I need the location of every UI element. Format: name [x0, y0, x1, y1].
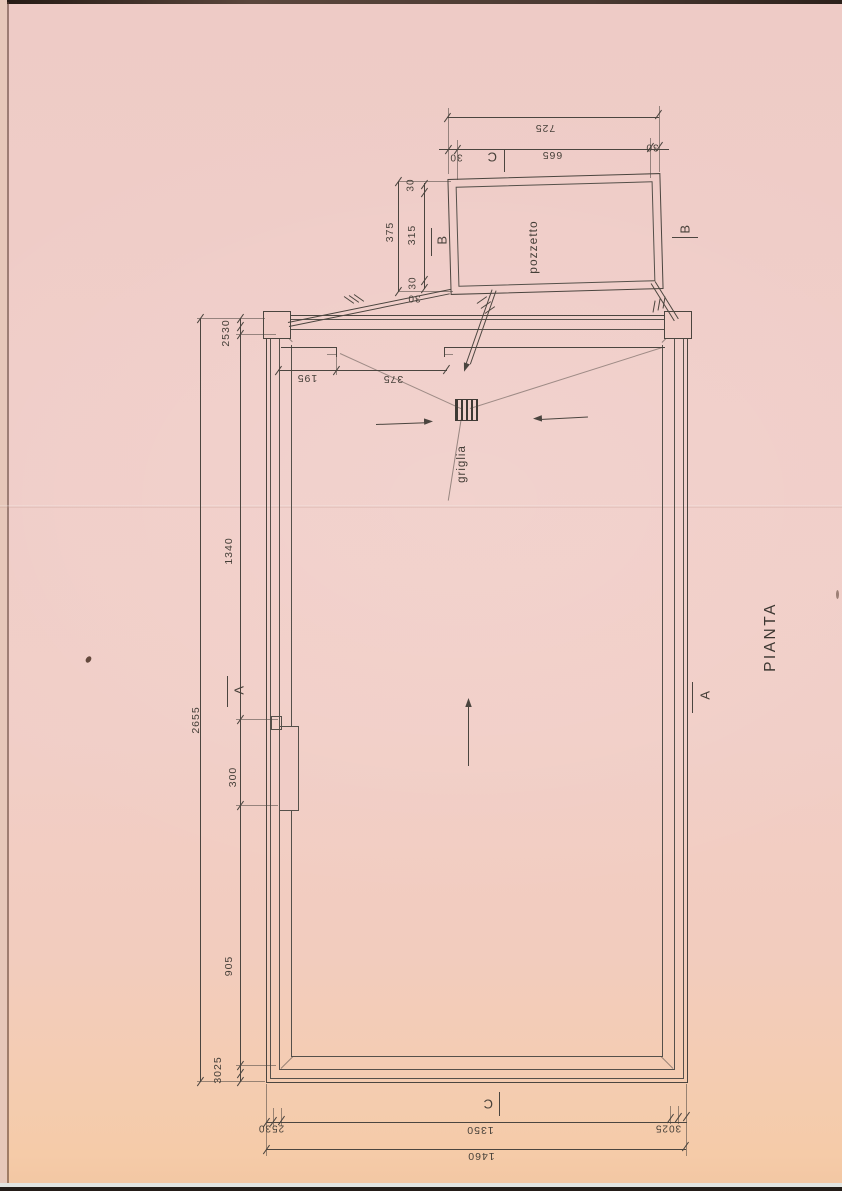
- dim-extension-line: [197, 1081, 265, 1082]
- flow-arrow-shaft: [468, 706, 469, 766]
- section-line-b-right: [672, 237, 698, 238]
- dim-edge-to-channel: 195: [297, 372, 318, 384]
- dim-extension-line: [266, 1084, 267, 1156]
- dim-pozzetto-wall-left: 30: [449, 152, 462, 163]
- dim-pozzetto-overall-depth: 375: [384, 222, 396, 243]
- dim-pipe-diameter: 30: [407, 293, 420, 304]
- dim-plan-overall-height: 2655: [190, 706, 202, 733]
- dim-line: [447, 117, 659, 118]
- dim-extension-line: [686, 1084, 687, 1156]
- paper-left-edge-line: [7, 2, 9, 1191]
- dim-line: [240, 318, 241, 1082]
- dim-lower-basin: 905: [223, 956, 235, 977]
- dim-extension-line: [659, 106, 660, 172]
- dim-bottom-walls-right: 3025: [655, 1123, 681, 1134]
- pozzetto-label: pozzetto: [526, 220, 540, 273]
- dim-extension-line: [457, 140, 458, 180]
- channel-right-line: [444, 347, 665, 348]
- dim-pozzetto-wall-bottom: 30: [408, 276, 419, 289]
- dim-extension-line: [399, 181, 451, 182]
- channel-left-line: [281, 347, 337, 348]
- pozzetto-inner-rect: [456, 181, 656, 286]
- dim-pozzetto-inner-width: 665: [542, 149, 563, 161]
- dim-extension-line: [678, 1106, 679, 1124]
- scanned-drawing-sheet: griglia pozzetto 725 30 665 30 C: [0, 0, 842, 1191]
- dim-line-overall: [200, 318, 201, 1082]
- grate-label: griglia: [456, 445, 468, 483]
- dim-plan-walls-top: 2530: [220, 319, 232, 346]
- drawing-title: PIANTA: [762, 602, 780, 672]
- paper-speck: [84, 655, 92, 664]
- basin-floor-rect: [291, 345, 663, 1057]
- dim-extension-line: [399, 291, 453, 292]
- section-line-a-left: [227, 676, 228, 707]
- dim-plan-walls-bottom: 3025: [212, 1056, 224, 1083]
- scan-top-edge: [0, 0, 842, 4]
- dim-extension-line: [236, 719, 278, 720]
- dim-basin-width: 1350: [466, 1124, 493, 1136]
- dim-extension-line: [281, 1108, 282, 1126]
- dim-extension-line: [236, 334, 276, 335]
- dim-pozzetto-overall-width: 725: [535, 122, 556, 134]
- dim-line: [398, 181, 399, 292]
- dim-extension-line: [236, 805, 278, 806]
- dim-extension-line: [236, 1065, 276, 1066]
- section-line-c-top: [504, 150, 505, 172]
- section-marker-b-left: B: [435, 235, 450, 244]
- section-marker-a-left: A: [232, 685, 247, 694]
- dim-extension-line: [670, 1106, 671, 1124]
- corner-post-right: [664, 311, 692, 339]
- section-line-a-right: [692, 682, 693, 713]
- dim-extension-line: [273, 1108, 274, 1126]
- dim-upper-basin: 1340: [223, 537, 235, 564]
- channel-left-end: [336, 347, 337, 357]
- paper-speck: [836, 590, 839, 599]
- dim-channel-to-grate: 375: [383, 373, 404, 385]
- wall-recess: [279, 726, 299, 811]
- channel-right-notch: [444, 354, 453, 355]
- dim-pozzetto-inner-depth: 315: [406, 225, 418, 246]
- section-marker-c-bottom: C: [483, 1097, 493, 1112]
- section-line-c-bottom: [499, 1092, 500, 1116]
- section-marker-c-top: C: [487, 150, 497, 165]
- grate-symbol: [455, 399, 478, 421]
- dim-extension-line: [448, 108, 449, 174]
- pipe-hatch: [657, 298, 660, 310]
- pipe-hatch: [652, 300, 655, 312]
- channel-right-end: [444, 347, 445, 357]
- dim-pozzetto-wall-right: 30: [645, 142, 658, 153]
- channel-left-notch: [327, 354, 336, 355]
- dim-extension-line: [336, 357, 337, 375]
- scan-left-margin: [0, 0, 7, 1191]
- dim-extension-line: [197, 318, 265, 319]
- dim-plan-overall-width: 1460: [467, 1150, 494, 1162]
- section-line-b-left: [431, 228, 432, 256]
- section-marker-b-right: B: [678, 224, 693, 233]
- dim-line: [424, 183, 425, 289]
- scan-bottom-dark-strip: [0, 1187, 842, 1191]
- dim-recess: 300: [227, 767, 239, 788]
- section-marker-a-right: A: [698, 690, 713, 699]
- dim-extension-line: [650, 138, 651, 178]
